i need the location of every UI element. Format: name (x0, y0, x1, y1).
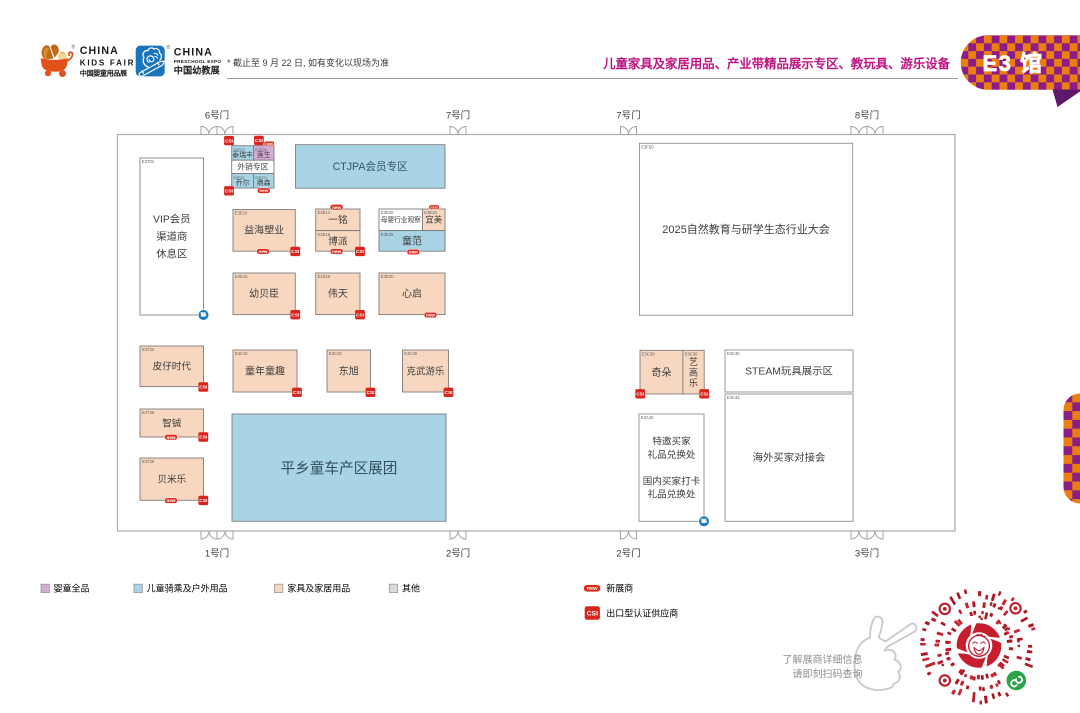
svg-text:国内买家打卡: 国内买家打卡 (643, 475, 701, 487)
svg-text:CSI: CSI (255, 138, 264, 144)
svg-text:儿童骑乘及户外用品: 儿童骑乘及户外用品 (147, 583, 228, 594)
svg-text:出口型认证供应商: 出口型认证供应商 (606, 607, 678, 618)
svg-text:VIP会员: VIP会员 (153, 213, 191, 226)
svg-text:new: new (426, 313, 435, 318)
svg-text:E3D20: E3D20 (381, 274, 394, 279)
svg-text:皮仔时代: 皮仔时代 (153, 361, 192, 373)
svg-text:new: new (259, 249, 268, 254)
svg-text:E3C10: E3C10 (235, 351, 248, 356)
svg-text:乐: 乐 (689, 377, 698, 388)
svg-text:CHINA: CHINA (174, 46, 213, 58)
svg-text:new: new (167, 435, 176, 440)
svg-text:CHINA: CHINA (80, 45, 119, 57)
svg-text:请即刻扫码查询: 请即刻扫码查询 (793, 668, 863, 681)
svg-text:莲生: 莲生 (257, 150, 271, 159)
svg-text:KIDS FAIR: KIDS FAIR (80, 59, 135, 68)
svg-text:7号门: 7号门 (446, 110, 470, 122)
svg-text:CSI: CSI (225, 138, 234, 144)
svg-text:儿童家具及家居用品、产业带精品展示专区、教玩具、游乐设备: 儿童家具及家居用品、产业带精品展示专区、教玩具、游乐设备 (602, 56, 951, 71)
svg-text:鼎森: 鼎森 (257, 178, 271, 187)
svg-text:CSI: CSI (291, 312, 300, 318)
svg-text:新展商: 新展商 (606, 583, 633, 594)
svg-text:PRESCHOOL EXPO: PRESCHOOL EXPO (174, 59, 222, 64)
svg-text:8号门: 8号门 (855, 110, 879, 122)
svg-text:克武游乐: 克武游乐 (406, 365, 445, 377)
svg-text:2号门: 2号门 (446, 548, 470, 560)
svg-text:E3 馆: E3 馆 (982, 51, 1043, 76)
svg-text:海外买家对接会: 海外买家对接会 (753, 451, 826, 464)
svg-text:中国幼教展: 中国幼教展 (174, 64, 221, 75)
svg-text:CSI: CSI (367, 390, 376, 396)
svg-text:E3T38: E3T38 (142, 459, 155, 464)
svg-text:E3E10: E3E10 (235, 211, 248, 216)
svg-text:伟天: 伟天 (328, 287, 348, 300)
svg-text:E3T01: E3T01 (142, 159, 155, 164)
svg-text:泰瑞丰: 泰瑞丰 (232, 150, 253, 159)
svg-text:E3D10: E3D10 (235, 274, 248, 279)
svg-text:外销专区: 外销专区 (237, 162, 268, 172)
svg-text:家具及家居用品: 家具及家居用品 (287, 583, 350, 594)
svg-text:E3T32: E3T32 (142, 347, 155, 352)
svg-text:中国婴童用品展: 中国婴童用品展 (80, 68, 128, 77)
svg-text:E3T36: E3T36 (142, 410, 155, 415)
svg-text:礼品兑换处: 礼品兑换处 (648, 449, 696, 461)
svg-text:E3D16: E3D16 (318, 274, 331, 279)
svg-text:一铭: 一铭 (328, 214, 348, 226)
svg-text:6号门: 6号门 (205, 110, 229, 122)
svg-text:new: new (167, 498, 176, 503)
svg-text:CSI: CSI (225, 189, 234, 195)
svg-text:艺: 艺 (689, 357, 698, 367)
svg-text:平乡童车产区展团: 平乡童车产区展团 (281, 459, 398, 477)
svg-text:CSI: CSI (199, 498, 208, 504)
svg-text:CSI: CSI (356, 312, 365, 318)
svg-text:CSI: CSI (199, 435, 208, 441)
svg-text:new: new (332, 205, 341, 210)
svg-text:new: new (430, 206, 437, 210)
svg-text:new: new (259, 188, 268, 193)
svg-text:2025自然教育与研学生态行业大会: 2025自然教育与研学生态行业大会 (662, 222, 829, 236)
svg-text:高: 高 (689, 367, 698, 378)
svg-text:new: new (266, 142, 273, 146)
svg-text:CSI: CSI (445, 390, 454, 396)
svg-text:E3C36: E3C36 (685, 352, 698, 357)
svg-text:CSI: CSI (356, 249, 365, 255)
svg-text:CSI: CSI (291, 249, 300, 255)
svg-text:礼品兑换处: 礼品兑换处 (648, 489, 696, 501)
svg-text:CSI: CSI (700, 392, 709, 398)
svg-text:3号门: 3号门 (855, 548, 879, 560)
svg-text:E3C30: E3C30 (642, 352, 655, 357)
svg-text:心启: 心启 (402, 287, 422, 300)
svg-text:®: ® (72, 44, 76, 51)
svg-text:乔尔: 乔尔 (236, 178, 250, 187)
svg-text:CSI: CSI (293, 390, 302, 396)
svg-text:幼贝臣: 幼贝臣 (249, 287, 279, 300)
svg-text:E3E20: E3E20 (381, 210, 394, 215)
svg-text:了解展商详细信息: 了解展商详细信息 (783, 653, 863, 666)
svg-text:益海塑业: 益海塑业 (244, 224, 284, 237)
svg-text:CSI: CSI (636, 392, 645, 398)
svg-text:new: new (409, 250, 418, 255)
svg-text:贝米乐: 贝米乐 (157, 474, 186, 486)
svg-text:CSI: CSI (199, 385, 208, 391)
svg-text:智铖: 智铖 (162, 417, 182, 429)
svg-text:奇朵: 奇朵 (652, 366, 672, 379)
svg-text:CTJPA会员专区: CTJPA会员专区 (333, 160, 409, 173)
svg-text:博派: 博派 (328, 234, 348, 247)
svg-text:7号门: 7号门 (616, 110, 640, 122)
svg-text:* 截止至 9 月 22 日, 如有变化以现场为准: * 截止至 9 月 22 日, 如有变化以现场为准 (227, 57, 389, 68)
svg-text:1号门: 1号门 (205, 548, 229, 560)
svg-text:CSI: CSI (587, 610, 598, 617)
svg-text:STEAM玩具展示区: STEAM玩具展示区 (745, 366, 833, 378)
svg-text:®: ® (167, 44, 171, 51)
svg-text:东旭: 东旭 (339, 365, 359, 378)
svg-text:E3F50: E3F50 (641, 145, 654, 150)
svg-text:特邀买家: 特邀买家 (652, 436, 691, 448)
svg-text:渠道商: 渠道商 (156, 230, 187, 243)
svg-text:E3C26: E3C26 (404, 351, 417, 356)
svg-text:童年童趣: 童年童趣 (245, 365, 285, 378)
svg-text:new: new (332, 249, 341, 254)
svg-text:宜美: 宜美 (425, 214, 442, 224)
svg-text:E3C40: E3C40 (727, 351, 740, 356)
svg-text:童范: 童范 (402, 234, 422, 247)
svg-text:母婴行业观察: 母婴行业观察 (381, 215, 421, 224)
svg-text:E3E25: E3E25 (381, 232, 394, 237)
svg-text:其他: 其他 (402, 583, 420, 594)
svg-text:E3C42: E3C42 (727, 395, 740, 400)
svg-text:E3C20: E3C20 (329, 351, 342, 356)
svg-text:休息区: 休息区 (156, 248, 187, 261)
svg-text:E3A40: E3A40 (641, 415, 654, 420)
svg-text:2号门: 2号门 (616, 548, 640, 560)
svg-text:婴童全品: 婴童全品 (54, 583, 90, 594)
svg-text:new: new (587, 586, 599, 592)
